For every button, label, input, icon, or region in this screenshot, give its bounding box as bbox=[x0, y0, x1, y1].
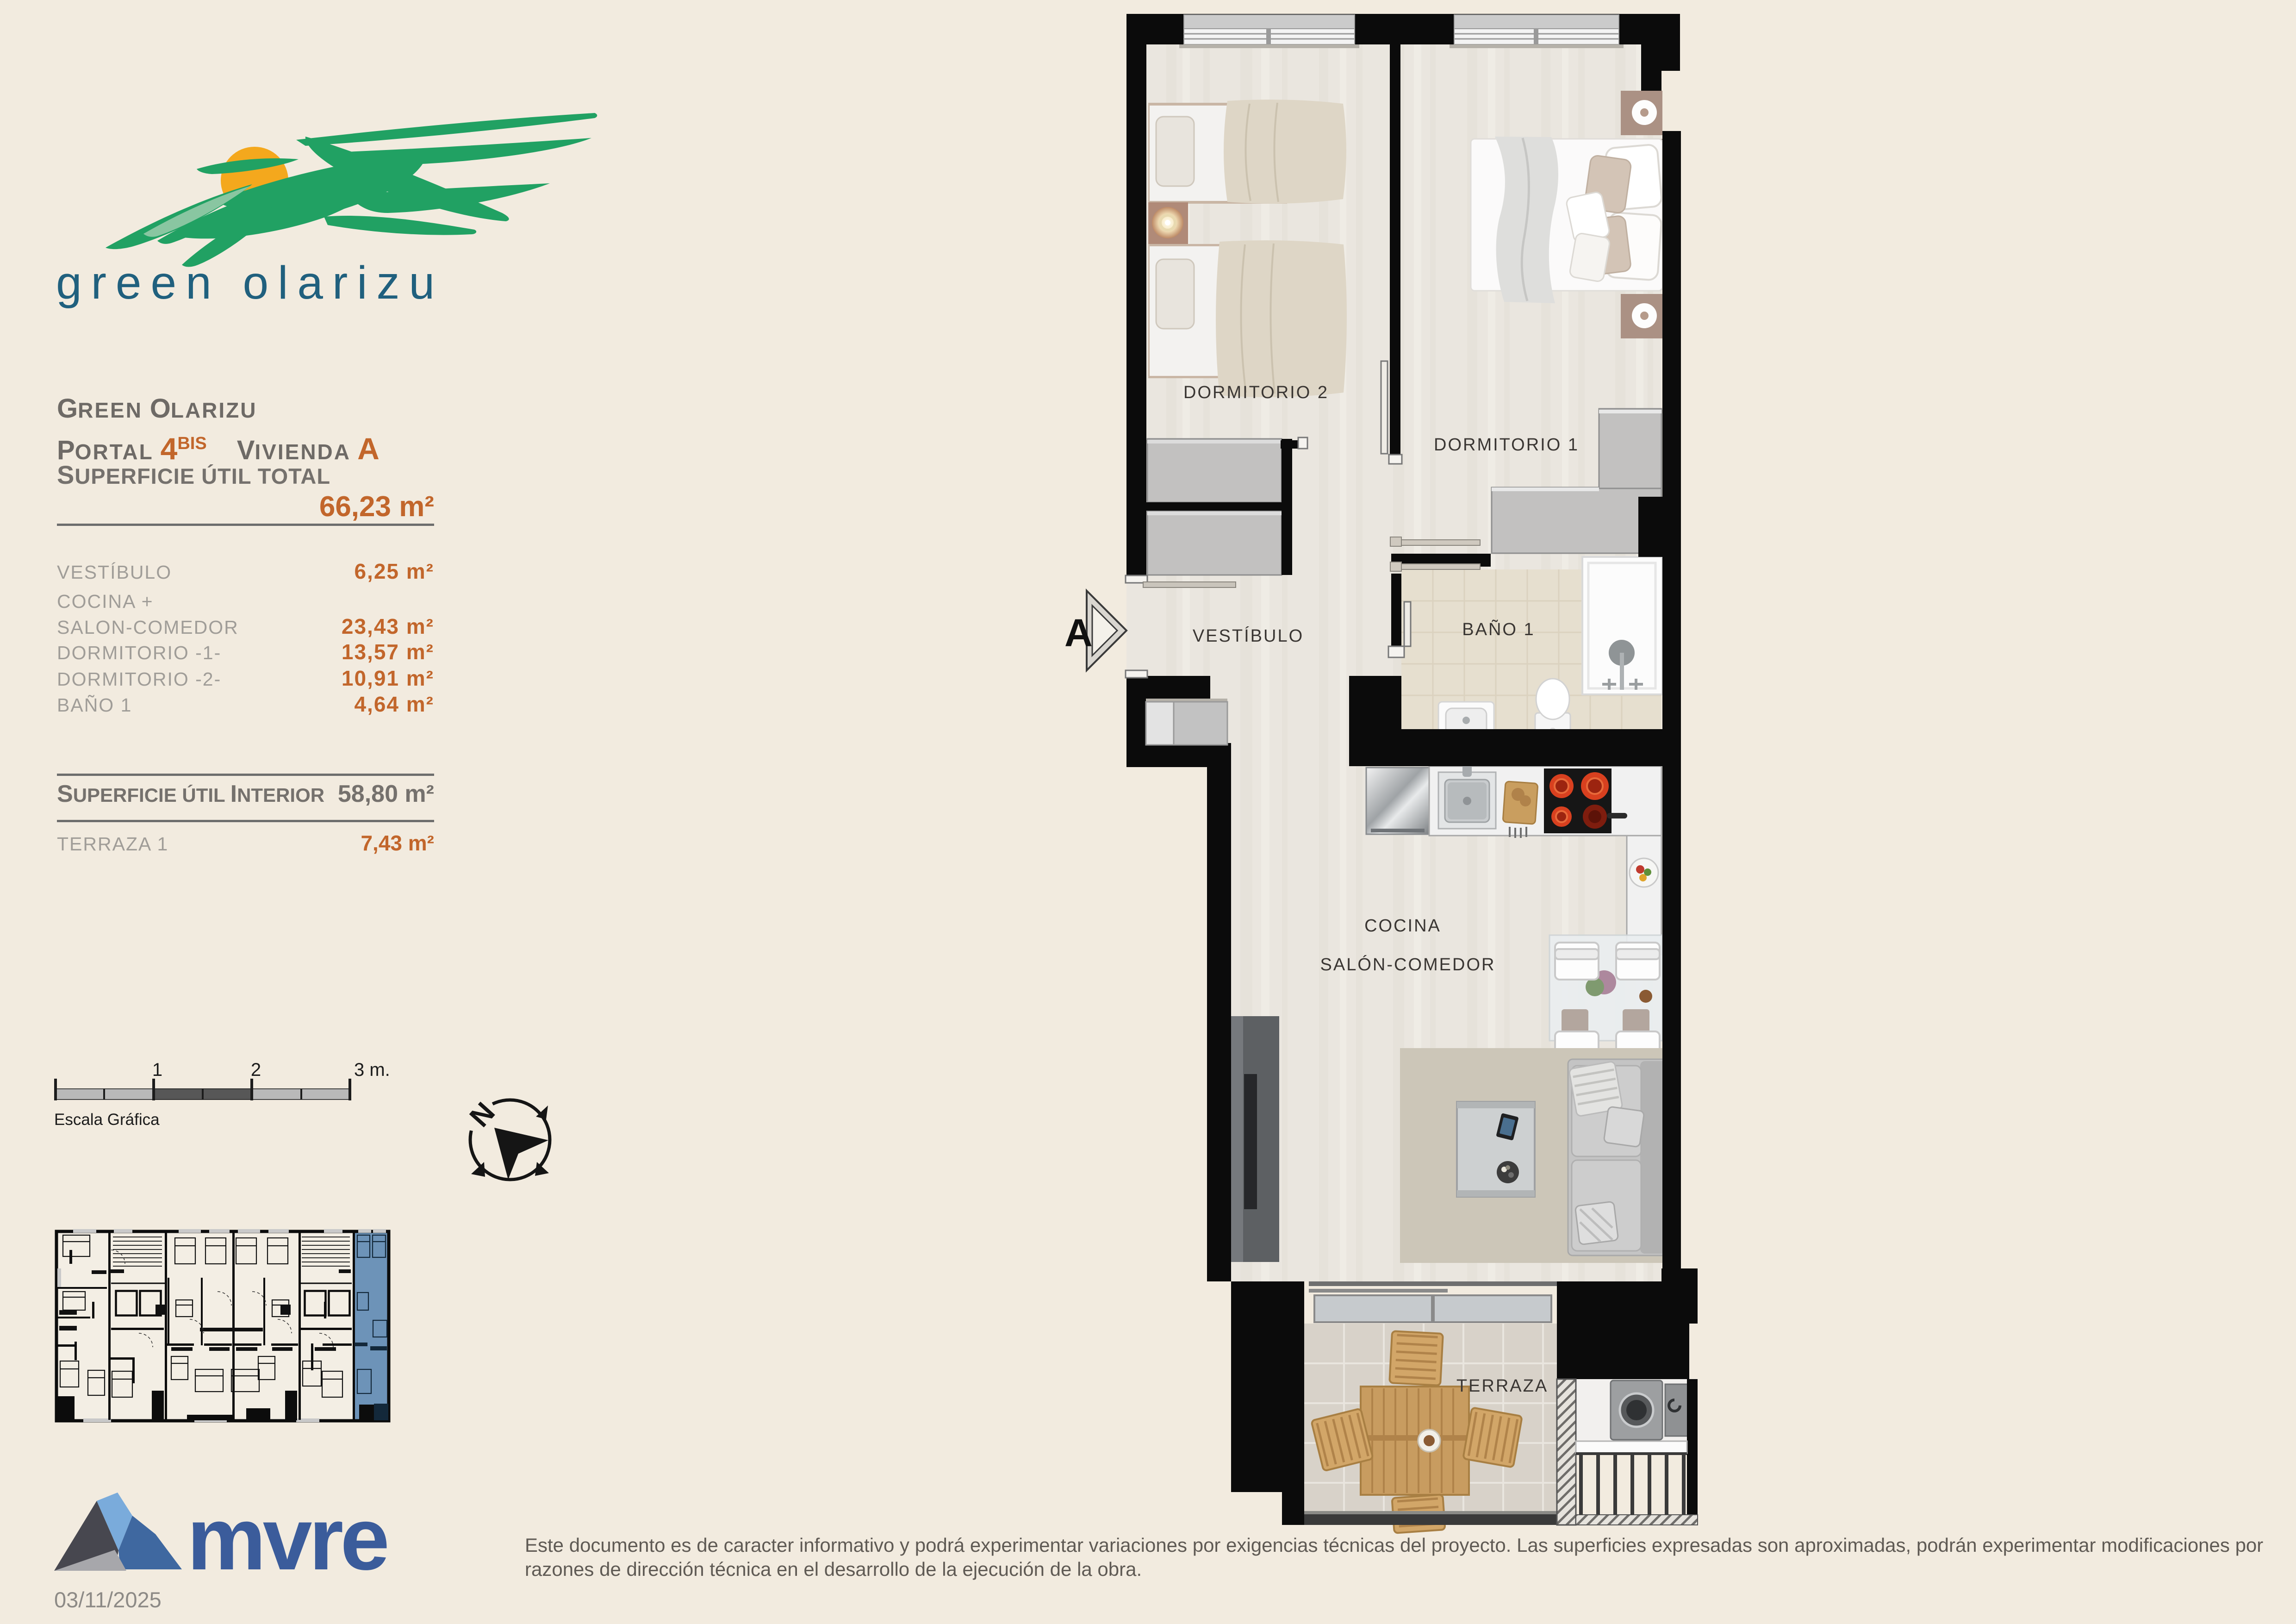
svg-text:GREEN OLARIZU: GREEN OLARIZU bbox=[57, 394, 257, 424]
svg-text:SUPERFICIE ÚTIL INTERIOR: SUPERFICIE ÚTIL INTERIOR bbox=[57, 781, 324, 807]
svg-text:DORMITORIO -1-: DORMITORIO -1- bbox=[57, 642, 221, 663]
svg-text:COCINA +: COCINA + bbox=[57, 591, 154, 612]
svg-text:SUPERFICIE ÚTIL TOTAL: SUPERFICIE ÚTIL TOTAL bbox=[57, 460, 330, 489]
svg-text:58,80 m²: 58,80 m² bbox=[338, 781, 434, 807]
svg-text:razones de dirección técnica e: razones de dirección técnica en el desar… bbox=[525, 1558, 1142, 1580]
svg-text:2: 2 bbox=[251, 1060, 261, 1080]
svg-text:1: 1 bbox=[152, 1060, 162, 1080]
svg-text:03/11/2025: 03/11/2025 bbox=[54, 1587, 162, 1612]
svg-text:COCINA: COCINA bbox=[1364, 916, 1441, 936]
svg-text:VESTÍBULO: VESTÍBULO bbox=[57, 562, 172, 583]
svg-text:66,23 m²: 66,23 m² bbox=[319, 491, 434, 523]
svg-text:DORMITORIO -2-: DORMITORIO -2- bbox=[57, 668, 221, 690]
svg-text:10,91 m²: 10,91 m² bbox=[342, 666, 434, 690]
svg-text:13,57 m²: 13,57 m² bbox=[342, 640, 434, 664]
svg-text:A: A bbox=[1064, 611, 1093, 655]
svg-text:VESTÍBULO: VESTÍBULO bbox=[1193, 626, 1304, 646]
svg-text:mvre: mvre bbox=[187, 1489, 387, 1588]
svg-text:Escala Gráfica: Escala Gráfica bbox=[54, 1111, 160, 1129]
svg-text:7,43 m²: 7,43 m² bbox=[361, 831, 434, 855]
svg-text:Este documento es de caracter: Este documento es de caracter informativ… bbox=[525, 1534, 2263, 1556]
svg-text:SALÓN-COMEDOR: SALÓN-COMEDOR bbox=[1320, 955, 1496, 974]
svg-text:4,64 m²: 4,64 m² bbox=[354, 692, 434, 716]
svg-text:green olarizu: green olarizu bbox=[56, 257, 444, 309]
svg-text:TERRAZA 1: TERRAZA 1 bbox=[57, 833, 168, 855]
svg-text:DORMITORIO 2: DORMITORIO 2 bbox=[1183, 383, 1329, 402]
svg-text:DORMITORIO 1: DORMITORIO 1 bbox=[1434, 435, 1579, 455]
svg-text:6,25 m²: 6,25 m² bbox=[354, 559, 434, 583]
svg-text:3 m.: 3 m. bbox=[354, 1060, 390, 1080]
svg-text:BAÑO 1: BAÑO 1 bbox=[1462, 619, 1535, 639]
svg-text:BAÑO 1: BAÑO 1 bbox=[57, 694, 132, 716]
svg-text:TERRAZA: TERRAZA bbox=[1456, 1376, 1548, 1396]
svg-text:23,43 m²: 23,43 m² bbox=[342, 614, 434, 638]
svg-text:SALON-COMEDOR: SALON-COMEDOR bbox=[57, 617, 239, 638]
